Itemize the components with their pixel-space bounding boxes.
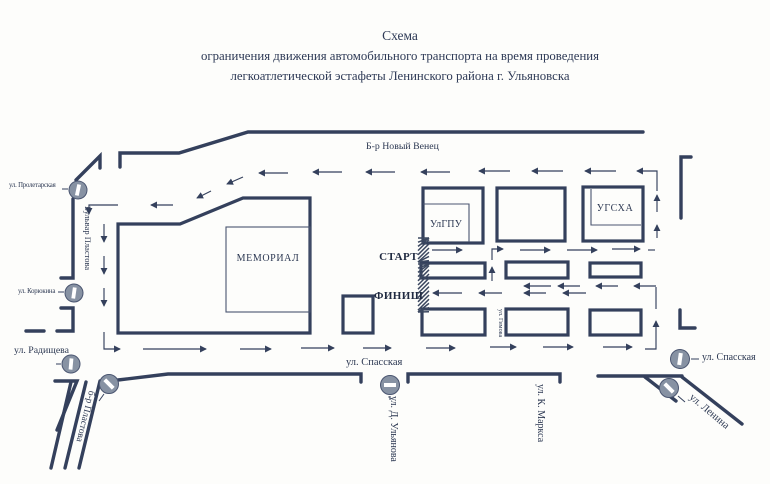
memorial-inner-rect <box>226 227 310 312</box>
building-memorial-block <box>118 198 310 333</box>
building-ulgpu-block <box>423 188 483 243</box>
sign-plastova-diagonal <box>96 371 123 398</box>
label-ugsha: УГСХА <box>589 203 641 214</box>
label-gimova: ул. Гимова <box>497 309 504 337</box>
building-bar-row2-mid <box>506 262 568 278</box>
building-ugsha-block <box>583 187 643 241</box>
label-koryukina: ул. Корюкина <box>18 288 55 295</box>
building-bar-row2-right <box>590 263 641 277</box>
building-block-top-middle <box>497 188 565 241</box>
building-small-square <box>343 296 373 333</box>
sign-d-ulyanova <box>381 376 400 395</box>
start-line-hatched-bar <box>418 238 429 262</box>
road-right-corner <box>680 310 695 328</box>
sign-radishcheva <box>61 354 81 374</box>
building-bar-row3-mid <box>506 309 568 335</box>
label-finish: ФИНИШ <box>374 290 418 302</box>
label-d-ulyanova: ул. Д. Ульянова <box>388 396 399 462</box>
label-bulvar-plastova: Бульвар Пластова <box>83 206 93 270</box>
road-spasskaya-segment-2 <box>408 374 560 382</box>
sign-koryukina <box>64 283 84 303</box>
label-spasskaya-center: ул. Спасская <box>346 357 402 368</box>
building-bar-row2-left <box>421 263 485 278</box>
road-plastova-west-edge-upper <box>61 199 73 278</box>
label-memorial: МЕМОРИАЛ <box>226 253 310 264</box>
sign-proletarskaya <box>67 179 88 200</box>
building-bar-row3-left <box>422 309 485 335</box>
finish-line-hatched-bar <box>418 264 429 312</box>
road-right-top-edge <box>681 157 691 218</box>
label-start: СТАРТ <box>378 251 418 263</box>
label-k-marksa: ул. К. Маркса <box>535 384 546 442</box>
label-ulgpu: УлГПУ <box>423 219 469 230</box>
road-plastova-west-edge-lower <box>57 308 73 331</box>
label-spasskaya-right: ул. Спасская <box>702 352 756 363</box>
traffic-scheme-map <box>0 0 770 484</box>
label-proletarskaya: ул. Пролетарская <box>9 182 56 189</box>
building-bar-row3-right <box>590 310 641 335</box>
scanned-scheme-page: Схема ограничения движения автомобильног… <box>0 0 770 484</box>
sign-lenina <box>656 375 683 402</box>
label-radishcheva: ул. Радищева <box>14 345 69 356</box>
road-proletarskaya-corner <box>76 156 100 180</box>
road-spasskaya-segment-1 <box>118 374 361 382</box>
label-novy-venets: Б-р Новый Венец <box>366 141 439 152</box>
sign-spasskaya-right <box>669 348 690 369</box>
